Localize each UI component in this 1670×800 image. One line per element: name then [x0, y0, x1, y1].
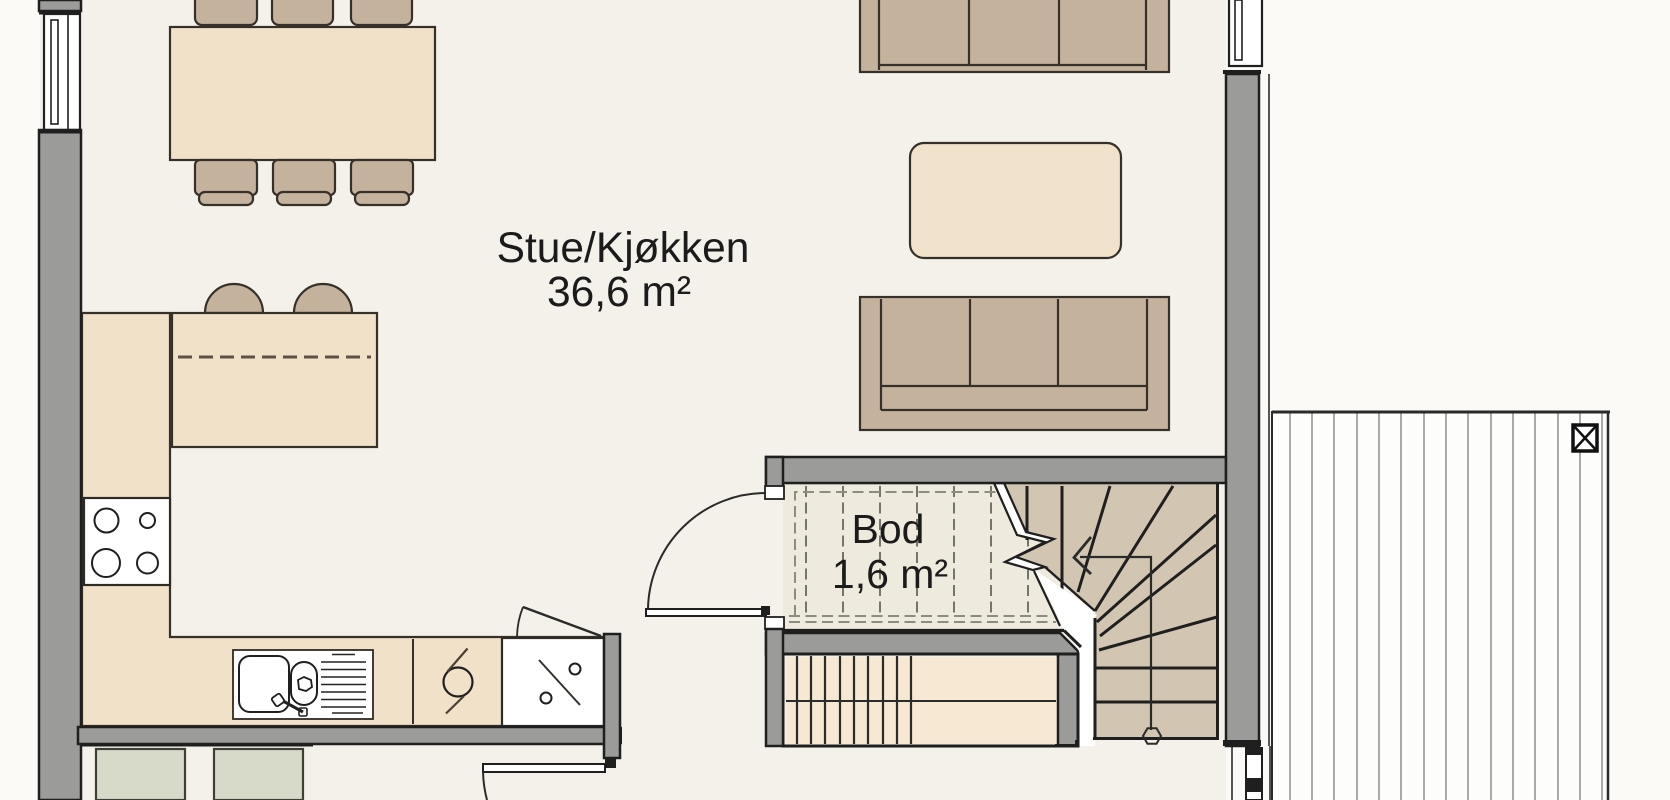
svg-text:1,6 m²: 1,6 m² — [832, 551, 948, 597]
svg-text:Bod: Bod — [852, 506, 925, 552]
svg-text:Stue/Kjøkken: Stue/Kjøkken — [497, 225, 750, 272]
svg-text:36,6 m²: 36,6 m² — [547, 269, 691, 316]
